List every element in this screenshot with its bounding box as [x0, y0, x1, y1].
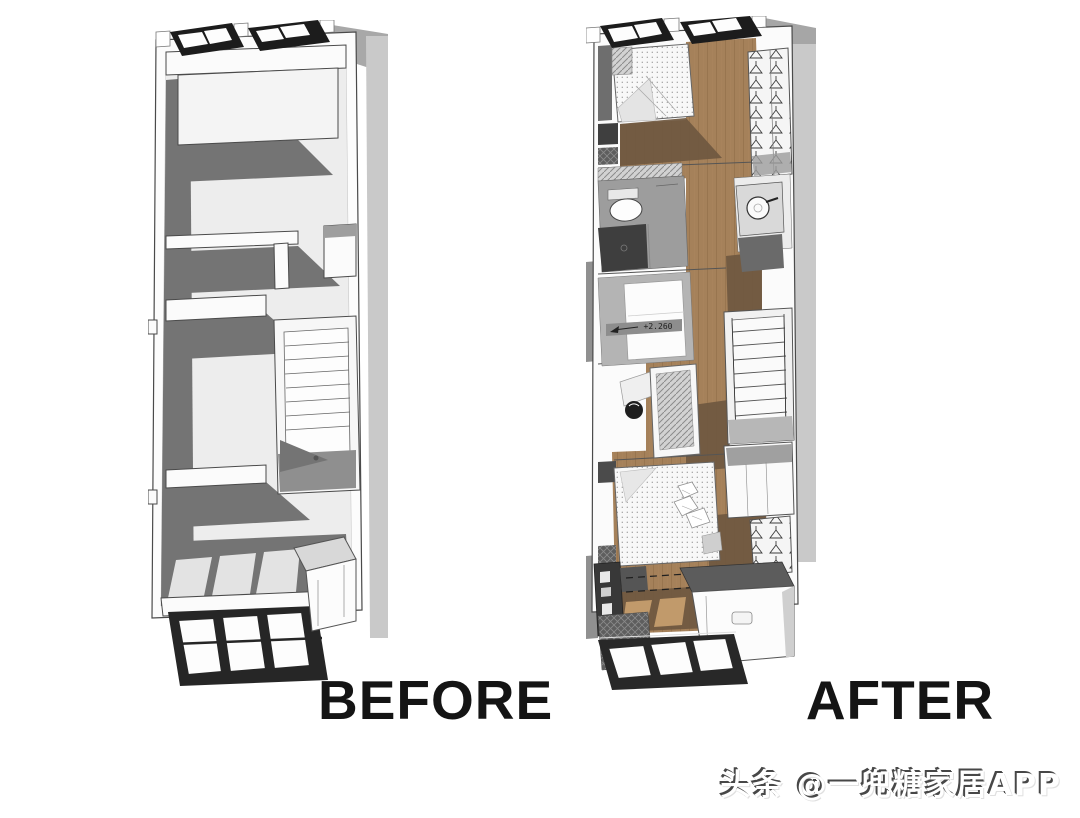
after-bottom-window — [598, 632, 748, 690]
before-staircase — [274, 316, 360, 494]
after-staircase — [724, 308, 794, 444]
washbasin — [747, 197, 769, 219]
after-caption: AFTER — [800, 668, 1000, 732]
after-understair-cabinet — [724, 442, 794, 518]
level-annotation: +2.260 — [644, 322, 673, 331]
before-floor-plan-illustration — [148, 20, 392, 692]
after-bathroom — [598, 163, 688, 272]
before-caption: BEFORE — [318, 668, 542, 732]
before-closet-top — [324, 224, 356, 238]
after-wardrobe-top — [748, 48, 792, 178]
after-floor-plan: +2.260 — [586, 16, 822, 694]
after-basin-niche — [734, 174, 792, 272]
before-bottom-window — [168, 606, 328, 686]
after-floor-plan-illustration: +2.260 — [586, 16, 822, 694]
after-mid-void: +2.260 — [598, 272, 694, 366]
watermark-text: 头条 @一兜糖家居APP — [720, 760, 1062, 804]
before-floor-plan — [148, 20, 392, 692]
shower-floor — [598, 224, 648, 272]
